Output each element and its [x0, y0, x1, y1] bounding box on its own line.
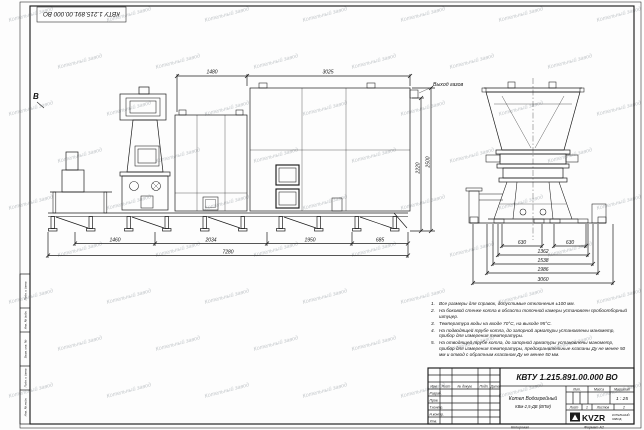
tb-name-line2: КВм-2,5-ДВ (ВПМ) — [515, 404, 551, 409]
dim-side-4: 1538 — [537, 258, 548, 264]
title-block: КВТУ 1.215.891.00.000 ВО Изм. Лист № док… — [428, 368, 634, 424]
note-item: 2.На боковой стенке котла в области топо… — [431, 308, 627, 320]
tb-row-razrab: Разраб. — [430, 392, 442, 396]
tb-name-line1: Котел Водогрейный — [509, 395, 558, 402]
view-marker: В — [33, 92, 44, 108]
strip-label: Инв. № дубл. — [24, 311, 28, 330]
sheet-frame — [20, 2, 641, 428]
tb-scale-label: Масштаб — [614, 388, 630, 392]
side-view — [466, 78, 606, 240]
tb-scale-value: 1 : 25 — [616, 396, 628, 402]
tb-mass-label: Масса — [594, 388, 604, 392]
side-view-dimensions: 630 630 1362 1538 1986 3060 — [471, 224, 615, 285]
dim-side-6: 3060 — [537, 277, 548, 283]
drawing-canvas: КВТУ 1.215.891.00.000 ВО Инв. № подл. По… — [0, 0, 644, 430]
drawing-sheet: Котельный заводКотельный заводКотельный … — [0, 0, 644, 430]
frame-left-strip: Инв. № подл. Подп. и дата Взам. инв. № И… — [20, 274, 30, 424]
tb-row-nkontr: Н.контр. — [430, 413, 444, 417]
note-item: 1.Все размеры для справок, допустимые от… — [431, 301, 627, 307]
gas-outlet-label: Выход газов — [433, 82, 464, 88]
format-label: Формат А2 — [584, 426, 604, 430]
view-marker-label: В — [33, 92, 39, 101]
dim-right-1: 2220 — [416, 162, 422, 174]
dim-side-5: 1986 — [537, 267, 548, 273]
kvzr-logo: KVZR КОТЕЛЬНЫЙ ЗАВОД — [570, 413, 630, 424]
logo-sub2: ЗАВОД — [612, 417, 621, 421]
dim-right-2: 2500 — [426, 156, 432, 168]
notes-list: 1.Все размеры для справок, допустимые от… — [431, 301, 627, 359]
tb-doc-number: КВТУ 1.215.891.00.000 ВО — [516, 373, 618, 382]
tb-col-data: Дата — [490, 385, 500, 389]
tb-row-prov: Пров. — [430, 399, 439, 403]
dim-bottom-3: 1950 — [304, 238, 315, 244]
dim-side-2: 630 — [566, 240, 575, 246]
front-view-dimensions: 1480 3025 2220 2500 — [46, 70, 435, 259]
dim-side-3: 1362 — [537, 249, 548, 255]
strip-label: Подп. и дата — [24, 368, 28, 387]
tb-sheet-label: Лист — [569, 406, 579, 410]
tb-sheets-value: 2 — [622, 406, 625, 410]
dim-top-2: 3025 — [322, 70, 333, 76]
logo-text: KVZR — [582, 413, 605, 423]
tb-sheets-label: Листов — [596, 406, 610, 410]
dim-top-1: 1480 — [206, 70, 217, 76]
tb-col-list: Лист — [441, 385, 451, 389]
strip-label: Инв. № подл. — [24, 398, 28, 417]
note-item: 3.Температура воды на входе 70°С, на вых… — [431, 321, 627, 327]
tb-row-utv: Утв. — [430, 420, 438, 424]
dim-side-1: 630 — [518, 240, 527, 246]
dim-bottom-1: 1460 — [109, 238, 120, 244]
strip-label: Подп. и дата — [24, 281, 28, 300]
title-stamp: КВТУ 1.215.891.00.000 ВО — [37, 7, 126, 22]
tb-col-izm: Изм. — [430, 385, 437, 389]
tb-col-doc: № докум. — [458, 385, 473, 389]
strip-label: Взам. инв. № — [24, 339, 28, 358]
tb-lit-label: Лит. — [572, 388, 581, 392]
dim-bottom-4: 685 — [376, 238, 385, 244]
dim-total: 7280 — [222, 250, 233, 256]
note-item: 4.На подводящей трубе котла, до запорной… — [431, 328, 627, 340]
copied-label: Копировал — [511, 426, 529, 430]
dim-bottom-2: 2034 — [204, 238, 216, 244]
note-item: 5.На отводящей трубе котла, до запорной … — [431, 340, 627, 358]
tb-col-podp: Подп. — [479, 385, 488, 389]
gas-outlet-callout: Выход газов — [419, 82, 464, 93]
tb-sheet-value: 1 — [586, 406, 588, 410]
stamp-doc-number: КВТУ 1.215.891.00.000 ВО — [43, 10, 120, 17]
front-view — [48, 83, 418, 231]
tb-row-tkontr: Т.контр. — [430, 406, 444, 410]
